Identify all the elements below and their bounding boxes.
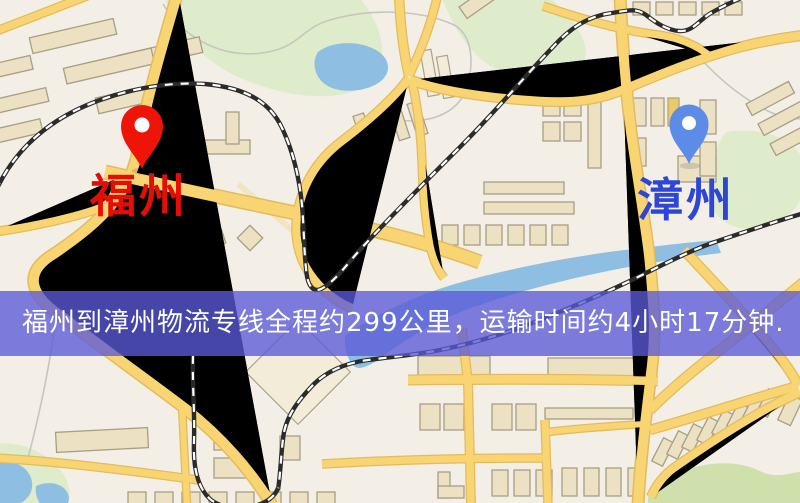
origin-pin-hole: [135, 118, 150, 133]
route-info-text: 福州到漳州物流专线全程约299公里，运输时间约4小时17分钟.: [22, 308, 785, 338]
map-canvas: [0, 0, 800, 503]
route-info-banner: 福州到漳州物流专线全程约299公里，运输时间约4小时17分钟.: [0, 291, 800, 356]
map-container: 福州 漳州 福州到漳州物流专线全程约299公里，运输时间约4小时17分钟.: [0, 0, 800, 503]
destination-pin-hole: [682, 116, 696, 130]
origin-pin-shadow: [132, 168, 154, 175]
destination-pin-shadow: [680, 163, 700, 170]
